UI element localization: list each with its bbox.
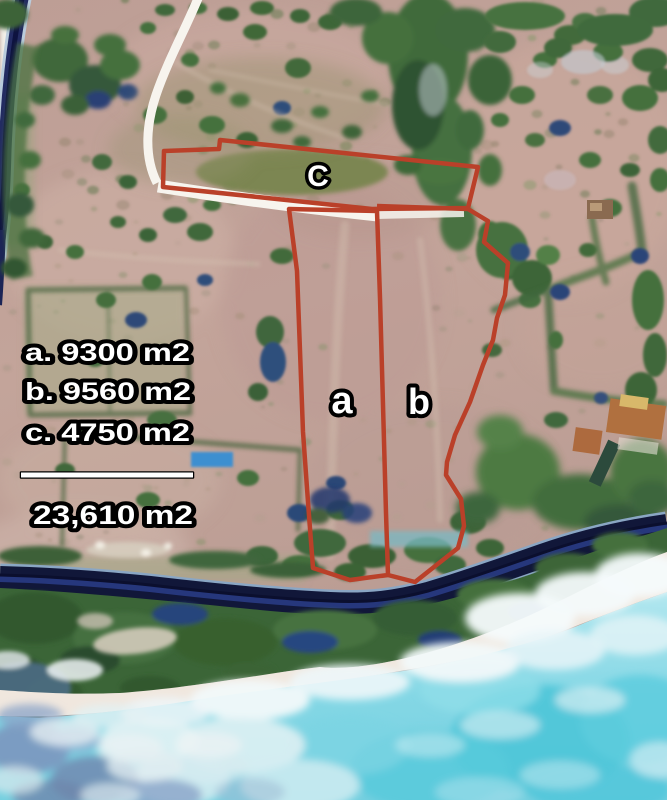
svg-text:a: a (331, 380, 353, 422)
svg-text:c. 4750 m2: c. 4750 m2 (25, 419, 190, 447)
svg-text:a. 9300 m2: a. 9300 m2 (25, 339, 190, 367)
svg-text:b. 9560 m2: b. 9560 m2 (25, 378, 191, 406)
svg-text:b: b (408, 381, 430, 422)
svg-text:C: C (307, 160, 329, 193)
svg-text:23,610 m2: 23,610 m2 (33, 500, 193, 530)
